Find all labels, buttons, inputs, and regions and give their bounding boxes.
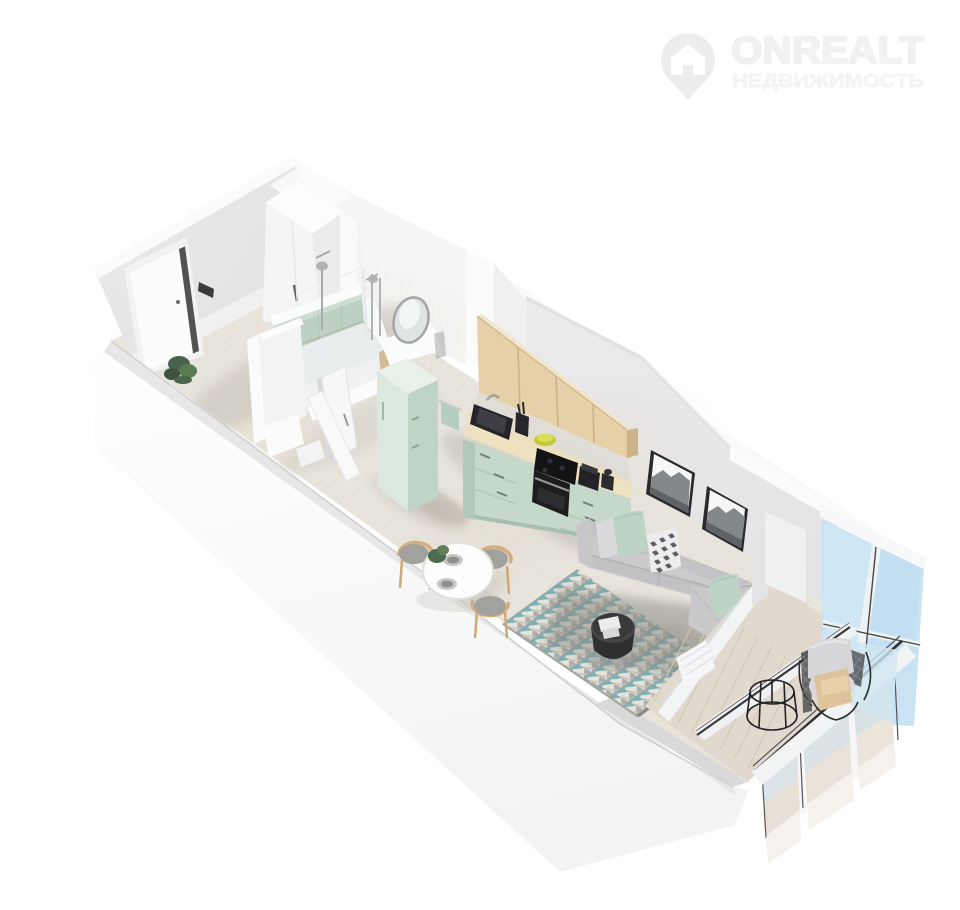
- svg-text:НЕДВИЖИМОСТЬ: НЕДВИЖИМОСТЬ: [732, 71, 924, 91]
- svg-text:ONREALT: ONREALT: [731, 30, 924, 72]
